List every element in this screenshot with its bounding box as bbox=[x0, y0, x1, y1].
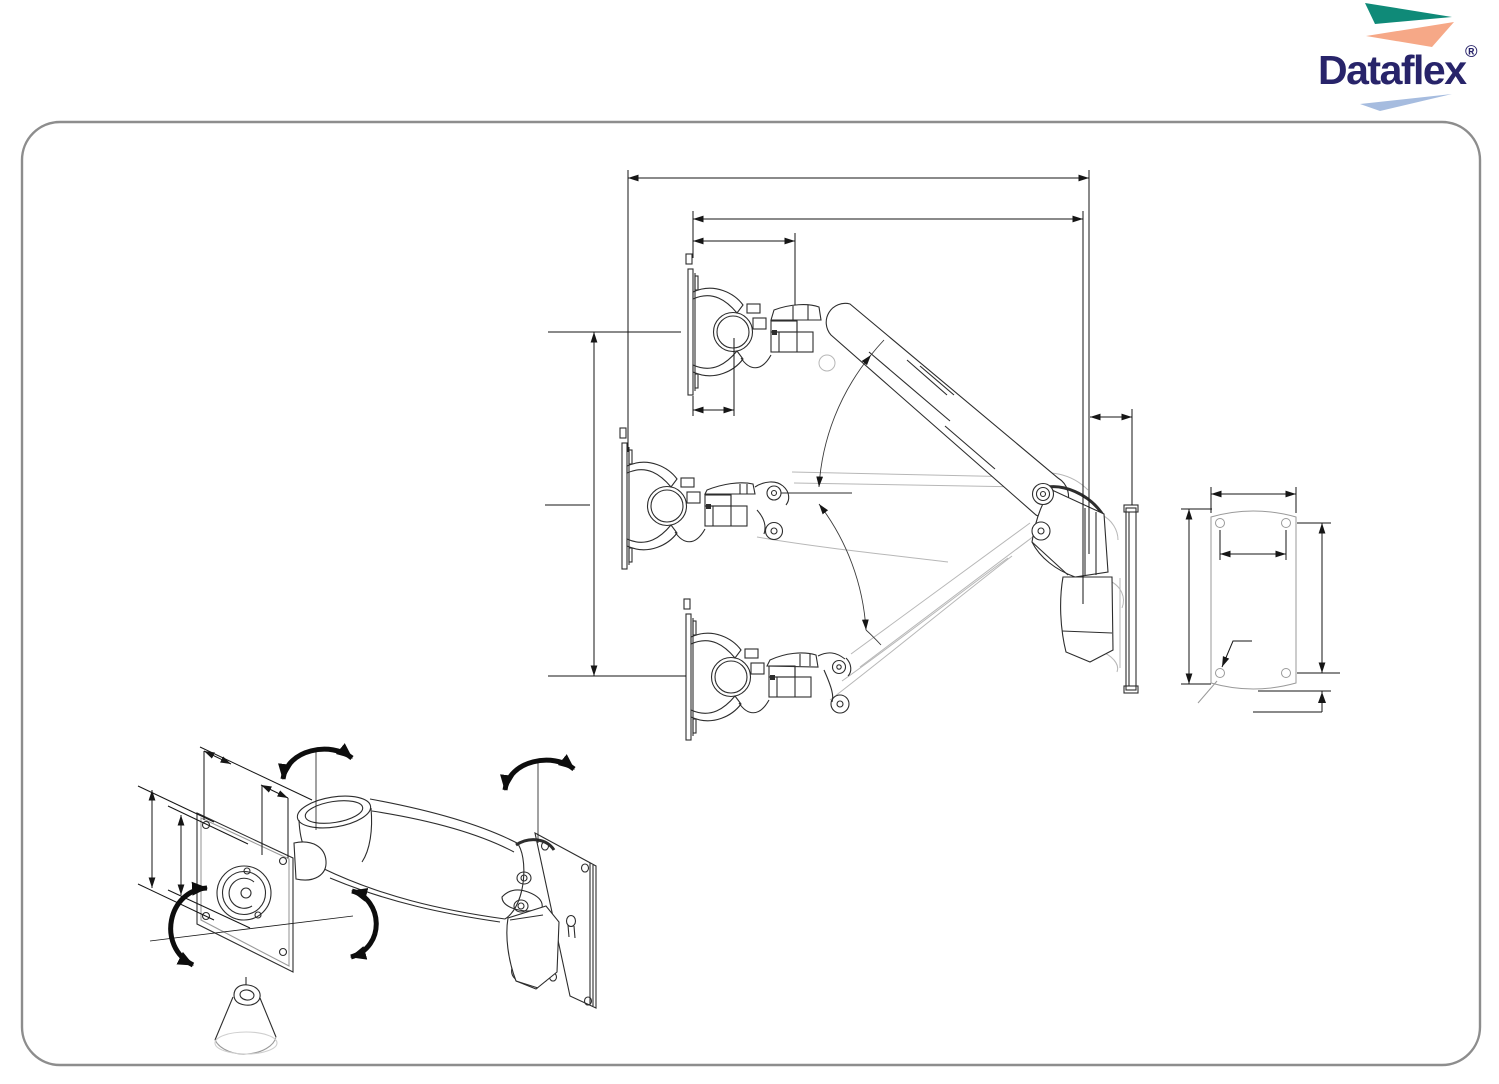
dimension-vesa-width-a bbox=[204, 751, 231, 764]
wall-housing-perspective bbox=[507, 906, 559, 989]
mounting-hole-leader bbox=[1222, 641, 1252, 667]
arm-position-bottom-head bbox=[684, 599, 851, 740]
cable-guide-cone bbox=[215, 977, 277, 1054]
rotation-arrow-elbow-swivel-icon bbox=[283, 749, 352, 779]
drawing-sheet: Dataflex ® bbox=[0, 0, 1499, 1084]
perspective-view bbox=[197, 791, 596, 1054]
side-view-range-of-motion bbox=[620, 254, 1138, 740]
side-view-dimensions bbox=[545, 170, 1132, 676]
wall-bracket-side-view bbox=[1032, 484, 1138, 694]
wall-plate-dimensions bbox=[1181, 487, 1340, 712]
arm-position-top-head bbox=[686, 254, 849, 395]
rotation-arrow-portrait-landscape-icon bbox=[351, 891, 376, 957]
arm-position-middle-head bbox=[620, 428, 852, 569]
technical-drawing bbox=[0, 0, 1499, 1084]
rotation-arrow-wall-swivel-icon bbox=[505, 760, 574, 790]
